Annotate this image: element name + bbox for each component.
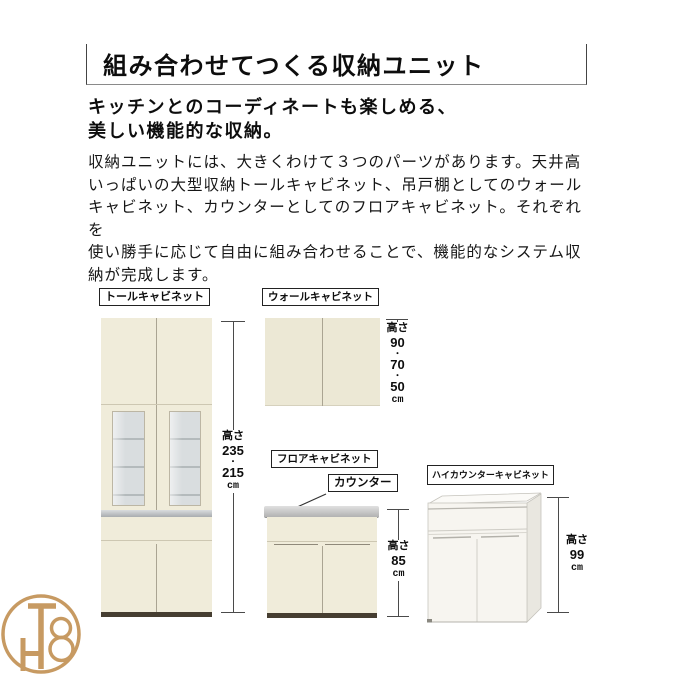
- height-label: 高さ: [384, 322, 411, 335]
- tall-counter-strip: [101, 510, 212, 517]
- tall-lower-door-split: [156, 544, 157, 612]
- high-dim-top-tick: [547, 497, 569, 498]
- height-separator: ・: [216, 458, 250, 465]
- tall-drawer-line: [101, 540, 212, 541]
- high-dim-text: 高さ 99 cm: [563, 534, 591, 575]
- height-value: 235: [216, 443, 250, 458]
- height-label: 高さ: [216, 430, 250, 443]
- height-unit: cm: [384, 394, 411, 407]
- high-counter-cabinet-label: ハイカウンターキャビネット: [427, 465, 554, 485]
- height-value: 85: [385, 553, 412, 568]
- height-separator: ・: [384, 350, 411, 357]
- high-counter-cabinet-illustration: [425, 487, 550, 627]
- height-label: 高さ: [563, 534, 591, 547]
- tall-dim-bottom-tick: [221, 612, 245, 613]
- floor-dim-text: 高さ 85 cm: [385, 540, 412, 581]
- tall-dim-top-tick: [221, 321, 245, 322]
- height-value: 99: [563, 547, 591, 562]
- height-label: 高さ: [385, 540, 412, 553]
- height-value: 50: [384, 379, 411, 394]
- height-unit: cm: [385, 568, 412, 581]
- tall-glass-door-left: [112, 411, 145, 506]
- tall-base-plinth: [101, 612, 212, 617]
- height-separator: ・: [384, 372, 411, 379]
- floor-dim-top-tick: [387, 509, 409, 510]
- floor-cabinet-label: フロアキャビネット: [271, 450, 378, 468]
- tall-glass-door-split: [156, 405, 157, 510]
- intro-text: 収納ユニットには、大きくわけて３つのパーツがあります。天井高 いっぱいの大型収納…: [88, 152, 592, 287]
- height-unit: cm: [216, 480, 250, 493]
- catalog-page: 組み合わせてつくる収納ユニット キッチンとのコーディネートも楽しめる、 美しい機…: [0, 0, 680, 680]
- high-dim-line: [558, 497, 559, 613]
- wall-cabinet-label-text: ウォールキャビネット: [268, 291, 373, 303]
- page-title: 組み合わせてつくる収納ユニット: [103, 46, 485, 81]
- floor-cabinet-label-text: フロアキャビネット: [277, 453, 372, 465]
- subtitle: キッチンとのコーディネートも楽しめる、 美しい機能的な収納。: [88, 95, 457, 143]
- floor-door-split: [322, 546, 323, 613]
- logo-watermark-icon: [0, 585, 110, 680]
- floor-base-plinth: [267, 613, 377, 618]
- wall-door-split: [322, 318, 323, 406]
- height-unit: cm: [563, 562, 591, 575]
- subtitle-line-2: 美しい機能的な収納。: [88, 119, 457, 143]
- height-value: 90: [384, 335, 411, 350]
- floor-dim-bottom-tick: [387, 616, 409, 617]
- title-block: 組み合わせてつくる収納ユニット: [86, 44, 587, 85]
- wall-dim-text: 高さ 90 ・ 70 ・ 50 cm: [384, 322, 411, 407]
- counter-label-text: カウンター: [334, 477, 392, 489]
- floor-left-door-handle: [274, 544, 318, 545]
- tall-dim-text: 高さ 235 ・ 215 cm: [216, 430, 250, 493]
- floor-drawer-line: [267, 541, 377, 542]
- high-counter-label-text: ハイカウンターキャビネット: [432, 470, 549, 480]
- high-dim-bottom-tick: [547, 612, 569, 613]
- tall-glass-door-right: [169, 411, 201, 506]
- tall-cabinet-label-text: トールキャビネット: [105, 291, 204, 303]
- tall-cabinet-label: トールキャビネット: [99, 288, 210, 306]
- wall-cabinet-label: ウォールキャビネット: [262, 288, 379, 306]
- height-value: 70: [384, 357, 411, 372]
- subtitle-line-1: キッチンとのコーディネートも楽しめる、: [88, 95, 457, 119]
- wall-dim-top-tick: [386, 319, 408, 320]
- height-value: 215: [216, 465, 250, 480]
- counter-label: カウンター: [328, 474, 398, 492]
- floor-right-door-handle: [325, 544, 370, 545]
- tall-upper-door-split: [156, 318, 157, 404]
